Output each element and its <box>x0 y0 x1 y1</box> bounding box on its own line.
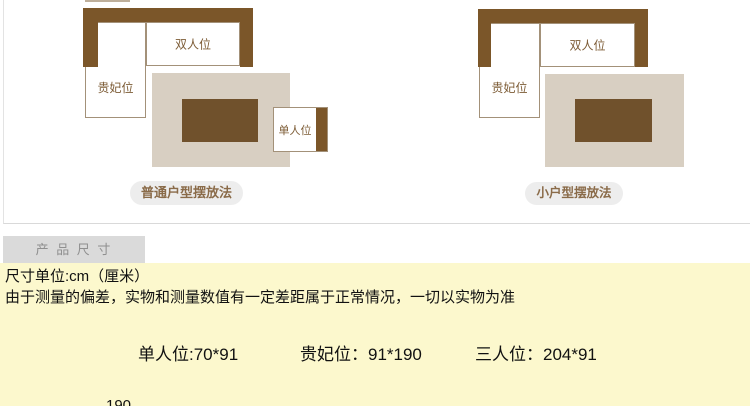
chaise-seat-label: 贵妃位 <box>86 79 145 96</box>
double-seat-box: 双人位 <box>146 22 240 66</box>
coffee-table <box>182 99 258 142</box>
double-seat-label: 双人位 <box>147 36 239 53</box>
cropped-element-remnant <box>85 0 130 2</box>
product-size-panel: 尺寸单位:cm（厘米） 由于测量的偏差，实物和测量数值有一定差距属于正常情况，一… <box>0 263 750 406</box>
product-detail-section: 贵妃位 双人位 单人位 普通户型摆放法 贵妃位 双人位 小户型摆放法 产 品 尺… <box>0 0 750 406</box>
caption-small-layout: 小户型摆放法 <box>525 182 623 205</box>
coffee-table <box>575 99 652 142</box>
sofa-right-armrest <box>240 22 253 67</box>
sofa-backrest <box>478 9 648 23</box>
sofa-left-armrest <box>478 23 491 67</box>
product-size-tab: 产 品 尺 寸 <box>3 236 145 263</box>
measurement-note-line: 由于测量的偏差，实物和测量数值有一定差距属于正常情况，一切以实物为准 <box>5 287 515 308</box>
double-seat-box: 双人位 <box>540 23 635 67</box>
dimension-single-seat: 单人位:70*91 <box>138 340 238 365</box>
dimension-chaise: 贵妃位：91*190 <box>300 340 422 365</box>
single-seat-label: 单人位 <box>274 122 327 138</box>
dimension-three-seat: 三人位：204*91 <box>475 340 597 365</box>
double-seat-label: 双人位 <box>541 37 634 54</box>
caption-normal-layout: 普通户型摆放法 <box>130 181 243 205</box>
single-seat-box: 单人位 <box>273 107 328 152</box>
chaise-seat-label: 贵妃位 <box>480 79 539 96</box>
sofa-right-armrest <box>635 23 648 67</box>
sofa-backrest <box>83 8 253 22</box>
size-unit-line: 尺寸单位:cm（厘米） <box>5 266 149 287</box>
sofa-left-armrest <box>83 22 98 67</box>
partial-dimension-text: 190 <box>106 397 131 406</box>
